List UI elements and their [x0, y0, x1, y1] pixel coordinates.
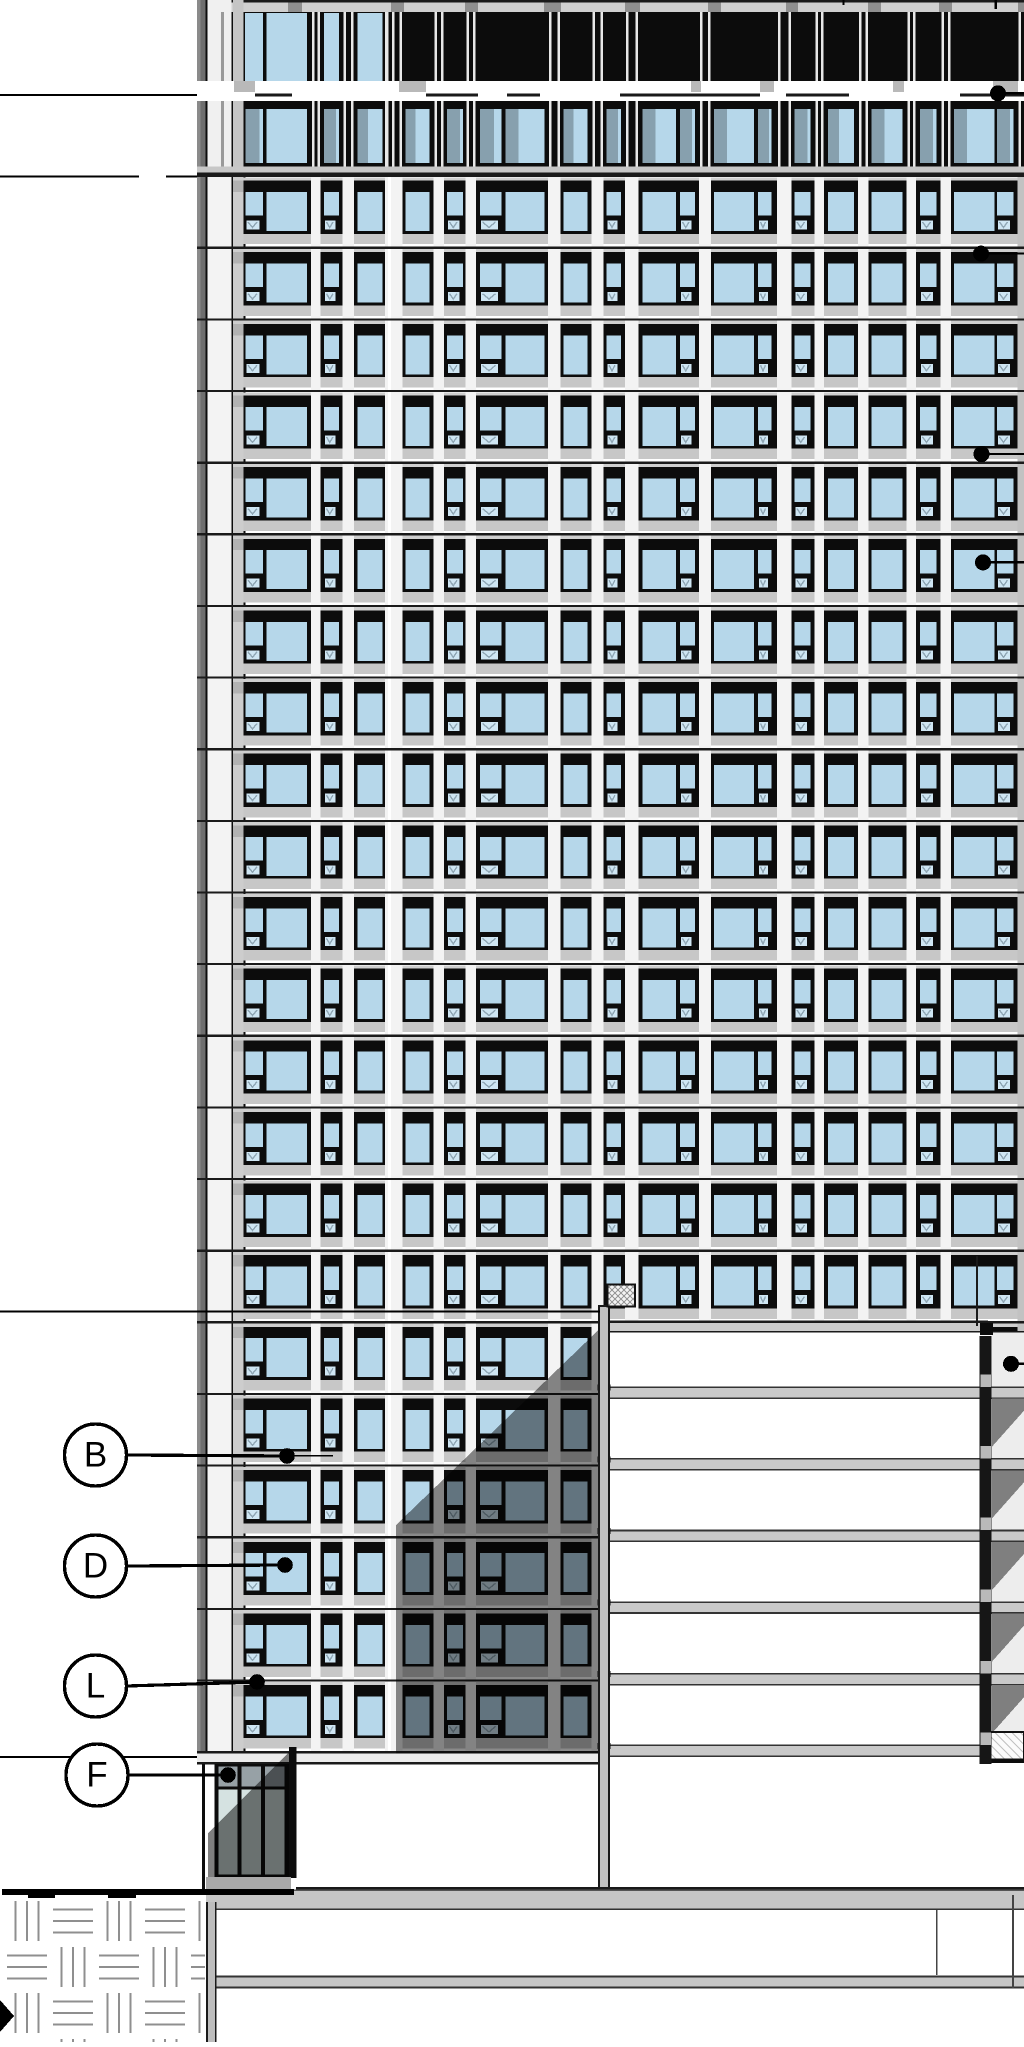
svg-text:L: L — [86, 1667, 105, 1706]
svg-text:F: F — [86, 1756, 107, 1795]
svg-text:D: D — [83, 1547, 108, 1586]
svg-text:B: B — [84, 1436, 107, 1475]
